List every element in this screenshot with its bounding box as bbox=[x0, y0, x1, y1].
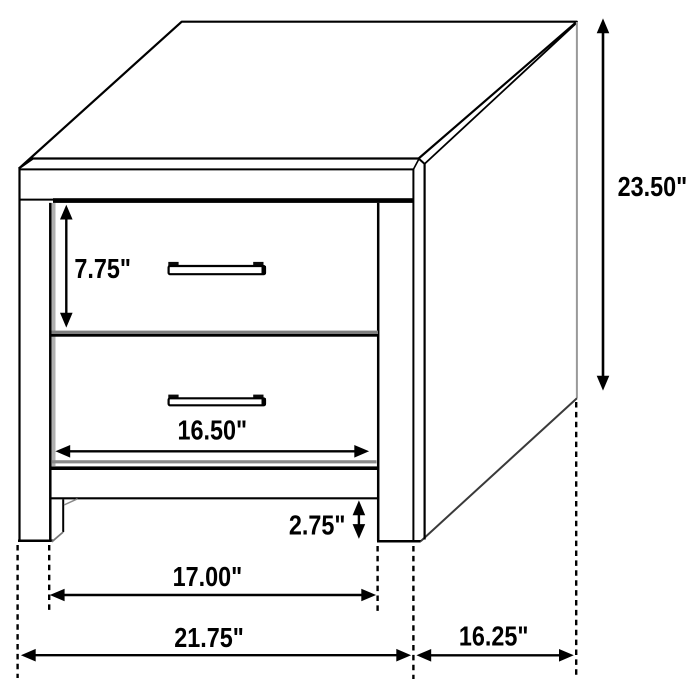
svg-text:7.75": 7.75" bbox=[74, 254, 131, 284]
svg-text:16.50": 16.50" bbox=[178, 416, 248, 446]
svg-text:23.50": 23.50" bbox=[618, 172, 688, 202]
svg-text:2.75": 2.75" bbox=[289, 511, 346, 541]
svg-text:17.00": 17.00" bbox=[173, 562, 243, 592]
svg-text:21.75": 21.75" bbox=[174, 623, 244, 653]
svg-text:16.25": 16.25" bbox=[459, 622, 529, 652]
